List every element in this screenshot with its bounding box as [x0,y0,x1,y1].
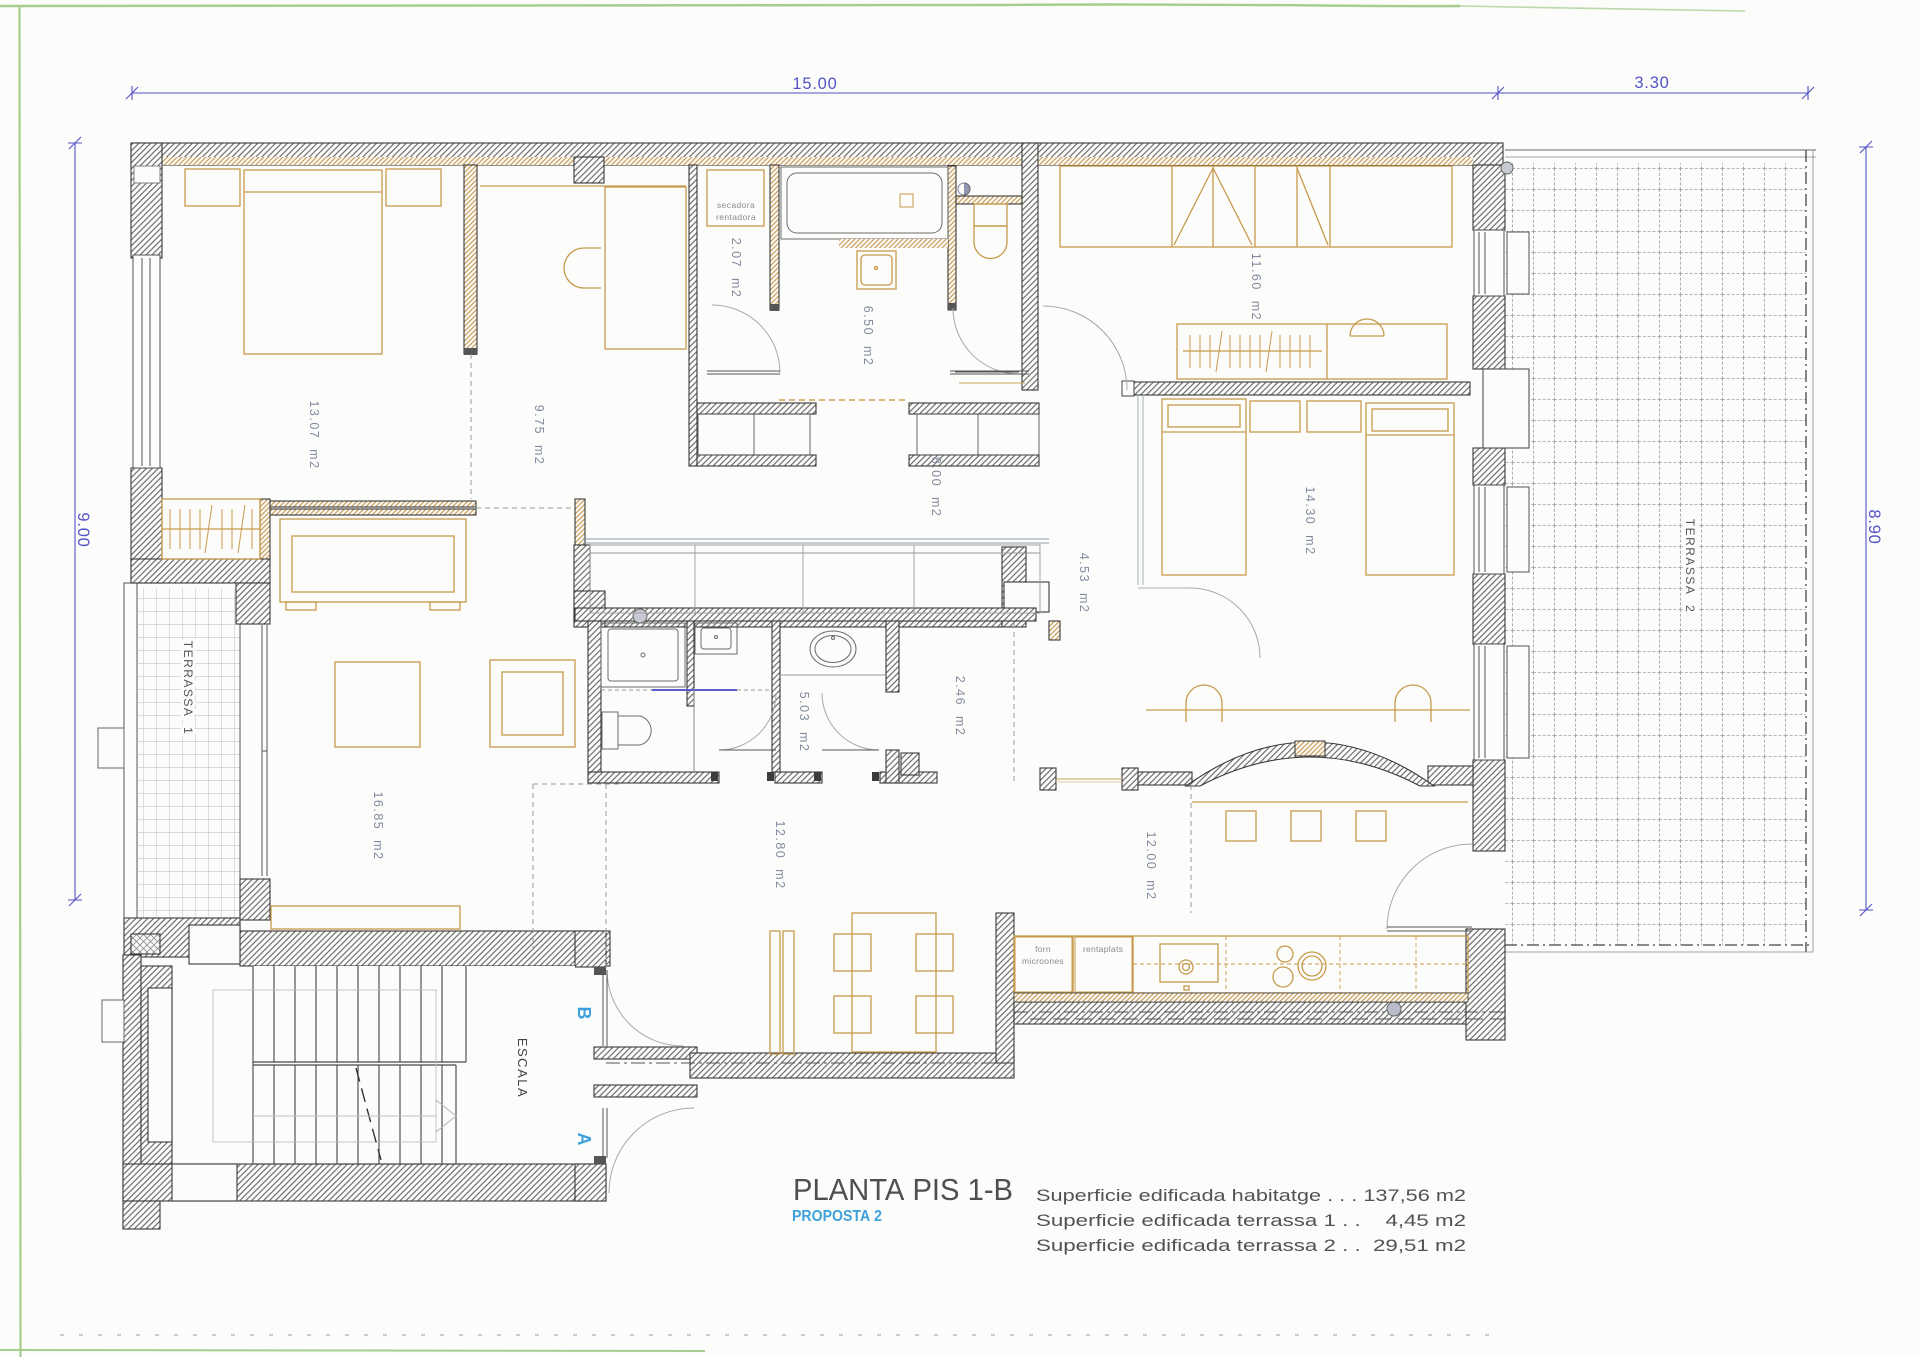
svg-text:9.75 m2: 9.75 m2 [532,405,546,466]
svg-text:Superficie edificada habitatge: Superficie edificada habitatge . . . 137… [1036,1187,1466,1205]
svg-text:PLANTA PIS 1-B: PLANTA PIS 1-B [793,1172,1013,1207]
svg-text:8.90: 8.90 [1865,509,1883,544]
svg-text:PROPOSTA 2: PROPOSTA 2 [792,1208,882,1225]
svg-text:16.85 m2: 16.85 m2 [371,791,385,860]
svg-text:8.00 m2: 8.00 m2 [929,457,943,518]
svg-text:2.07 m2: 2.07 m2 [729,238,743,299]
svg-text:forn: forn [1035,944,1051,954]
svg-text:4.53 m2: 4.53 m2 [1077,553,1091,614]
svg-text:11.60 m2: 11.60 m2 [1249,253,1263,321]
svg-text:Superficie edificada terrassa: Superficie edificada terrassa 2 . . 29,5… [1036,1237,1466,1255]
svg-text:rentadora: rentadora [716,212,756,222]
svg-text:rentaplats: rentaplats [1083,944,1123,954]
svg-text:Superficie edificada terrassa: Superficie edificada terrassa 1 . . 4,45… [1036,1212,1466,1230]
svg-text:B: B [574,1007,594,1020]
svg-text:TERRASSA 1: TERRASSA 1 [181,641,195,736]
svg-text:A: A [574,1133,594,1146]
svg-text:secadora: secadora [717,200,755,210]
svg-text:ESCALA: ESCALA [515,1038,530,1098]
svg-text:6.50 m2: 6.50 m2 [861,306,875,367]
svg-text:3.30: 3.30 [1634,74,1669,92]
svg-text:2.46 m2: 2.46 m2 [953,676,967,737]
svg-text:5.03 m2: 5.03 m2 [797,692,811,753]
svg-text:12.80 m2: 12.80 m2 [773,820,787,889]
svg-text:15.00: 15.00 [792,75,837,93]
svg-text:9.00: 9.00 [74,512,92,547]
svg-text:TERRASSA 2: TERRASSA 2 [1683,519,1697,614]
svg-text:12.00 m2: 12.00 m2 [1144,831,1158,900]
svg-text:13.07 m2: 13.07 m2 [307,400,321,469]
svg-text:14.30 m2: 14.30 m2 [1303,486,1317,555]
svg-text:microones: microones [1022,956,1064,966]
